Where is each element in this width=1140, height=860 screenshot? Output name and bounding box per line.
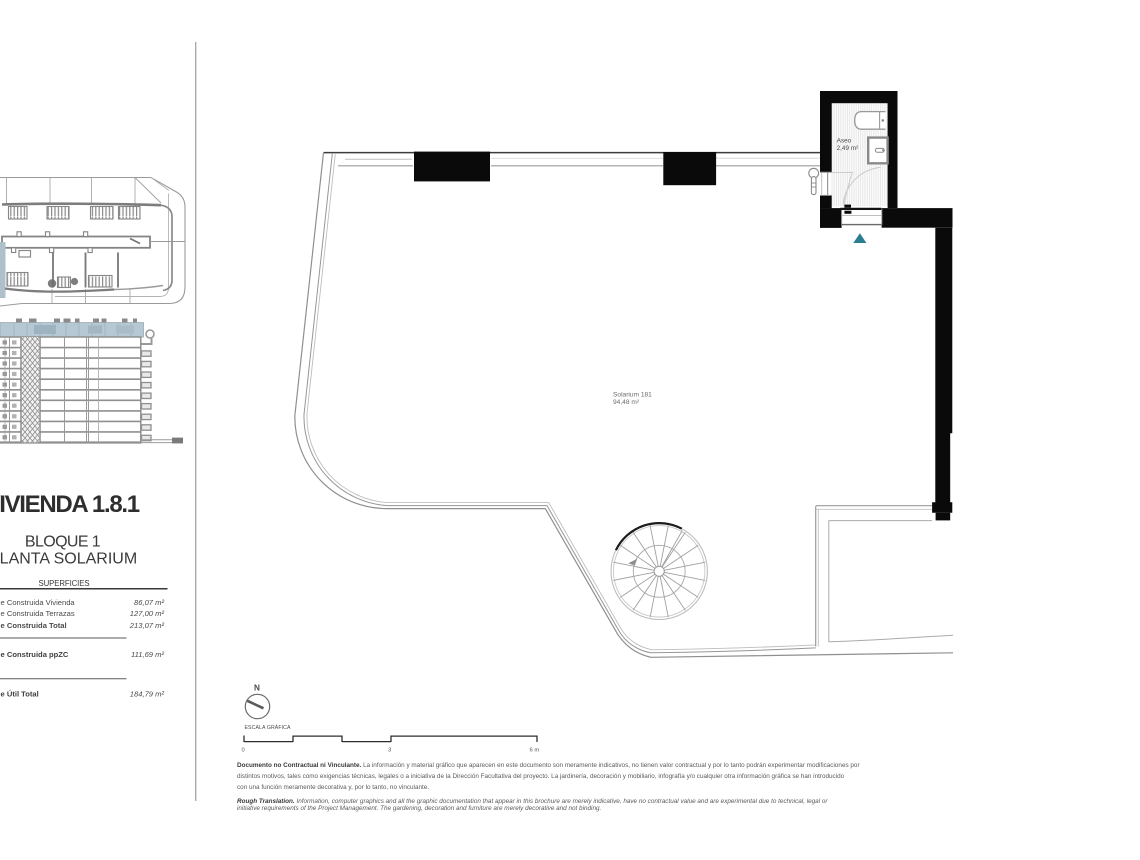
svg-text:2,49 m²: 2,49 m² [837, 145, 859, 152]
svg-text:PLANTA SOLARIUM: PLANTA SOLARIUM [0, 550, 137, 567]
svg-text:94,48 m²: 94,48 m² [613, 399, 640, 406]
svg-text:e Construida Terrazas: e Construida Terrazas [1, 609, 75, 618]
svg-text:e Construida ppZC: e Construida ppZC [1, 650, 69, 659]
svg-text:Aseo: Aseo [837, 138, 852, 145]
svg-text:Rough Translation. Information: Rough Translation. Information, computer… [237, 798, 828, 805]
svg-text:SUPERFICIES: SUPERFICIES [39, 579, 90, 588]
svg-text:6 m: 6 m [530, 748, 540, 754]
svg-text:Documento no Contractual ni Vi: Documento no Contractual ni Vinculante. … [237, 762, 860, 769]
svg-text:N: N [254, 684, 260, 693]
svg-text:0: 0 [242, 748, 245, 754]
svg-text:ESCALA GRÁFICA: ESCALA GRÁFICA [245, 724, 292, 731]
svg-text:111,69 m²: 111,69 m² [131, 650, 165, 659]
svg-text:con una función meramente deco: con una función meramente decorativa y, … [237, 784, 429, 791]
svg-text:213,07 m²: 213,07 m² [129, 621, 165, 630]
svg-text:3: 3 [388, 748, 391, 754]
svg-text:184,79 m²: 184,79 m² [130, 690, 165, 699]
svg-text:e Útil Total: e Útil Total [1, 690, 39, 699]
svg-text:initiative requirements of the: initiative requirements of the Project M… [237, 805, 601, 812]
svg-text:Solarium 181: Solarium 181 [613, 391, 652, 398]
svg-text:86,07 m²: 86,07 m² [134, 598, 164, 607]
svg-text:distintos motivos, tales como: distintos motivos, tales como exigencias… [237, 773, 845, 780]
svg-text:VIVIENDA 1.8.1: VIVIENDA 1.8.1 [0, 491, 140, 518]
svg-text:127,00 m²: 127,00 m² [130, 609, 165, 618]
svg-text:e Construida Total: e Construida Total [1, 621, 67, 630]
svg-text:BLOQUE 1: BLOQUE 1 [25, 534, 101, 551]
svg-text:e Construida Vivienda: e Construida Vivienda [1, 598, 76, 607]
